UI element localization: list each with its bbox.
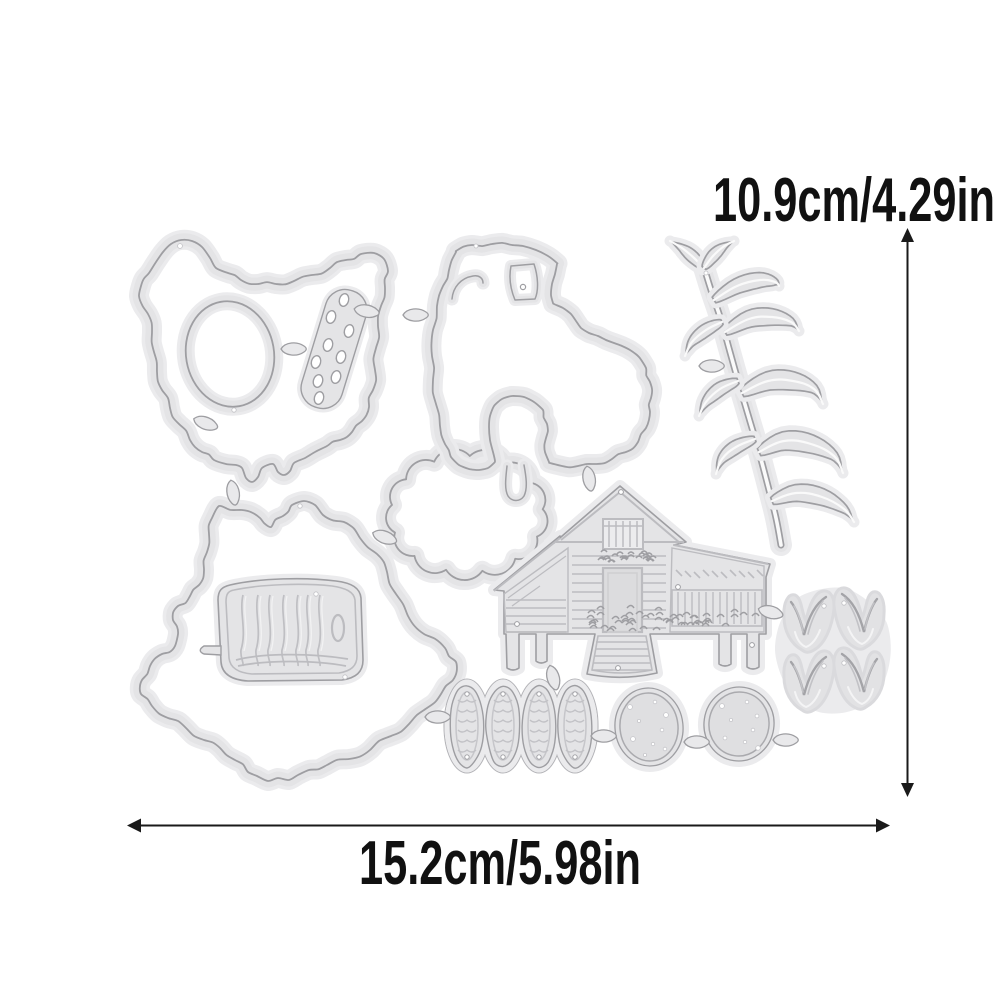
svg-text:15.2cm/5.98in: 15.2cm/5.98in — [359, 829, 641, 898]
svg-text:10.9cm/4.29in: 10.9cm/4.29in — [713, 166, 995, 235]
